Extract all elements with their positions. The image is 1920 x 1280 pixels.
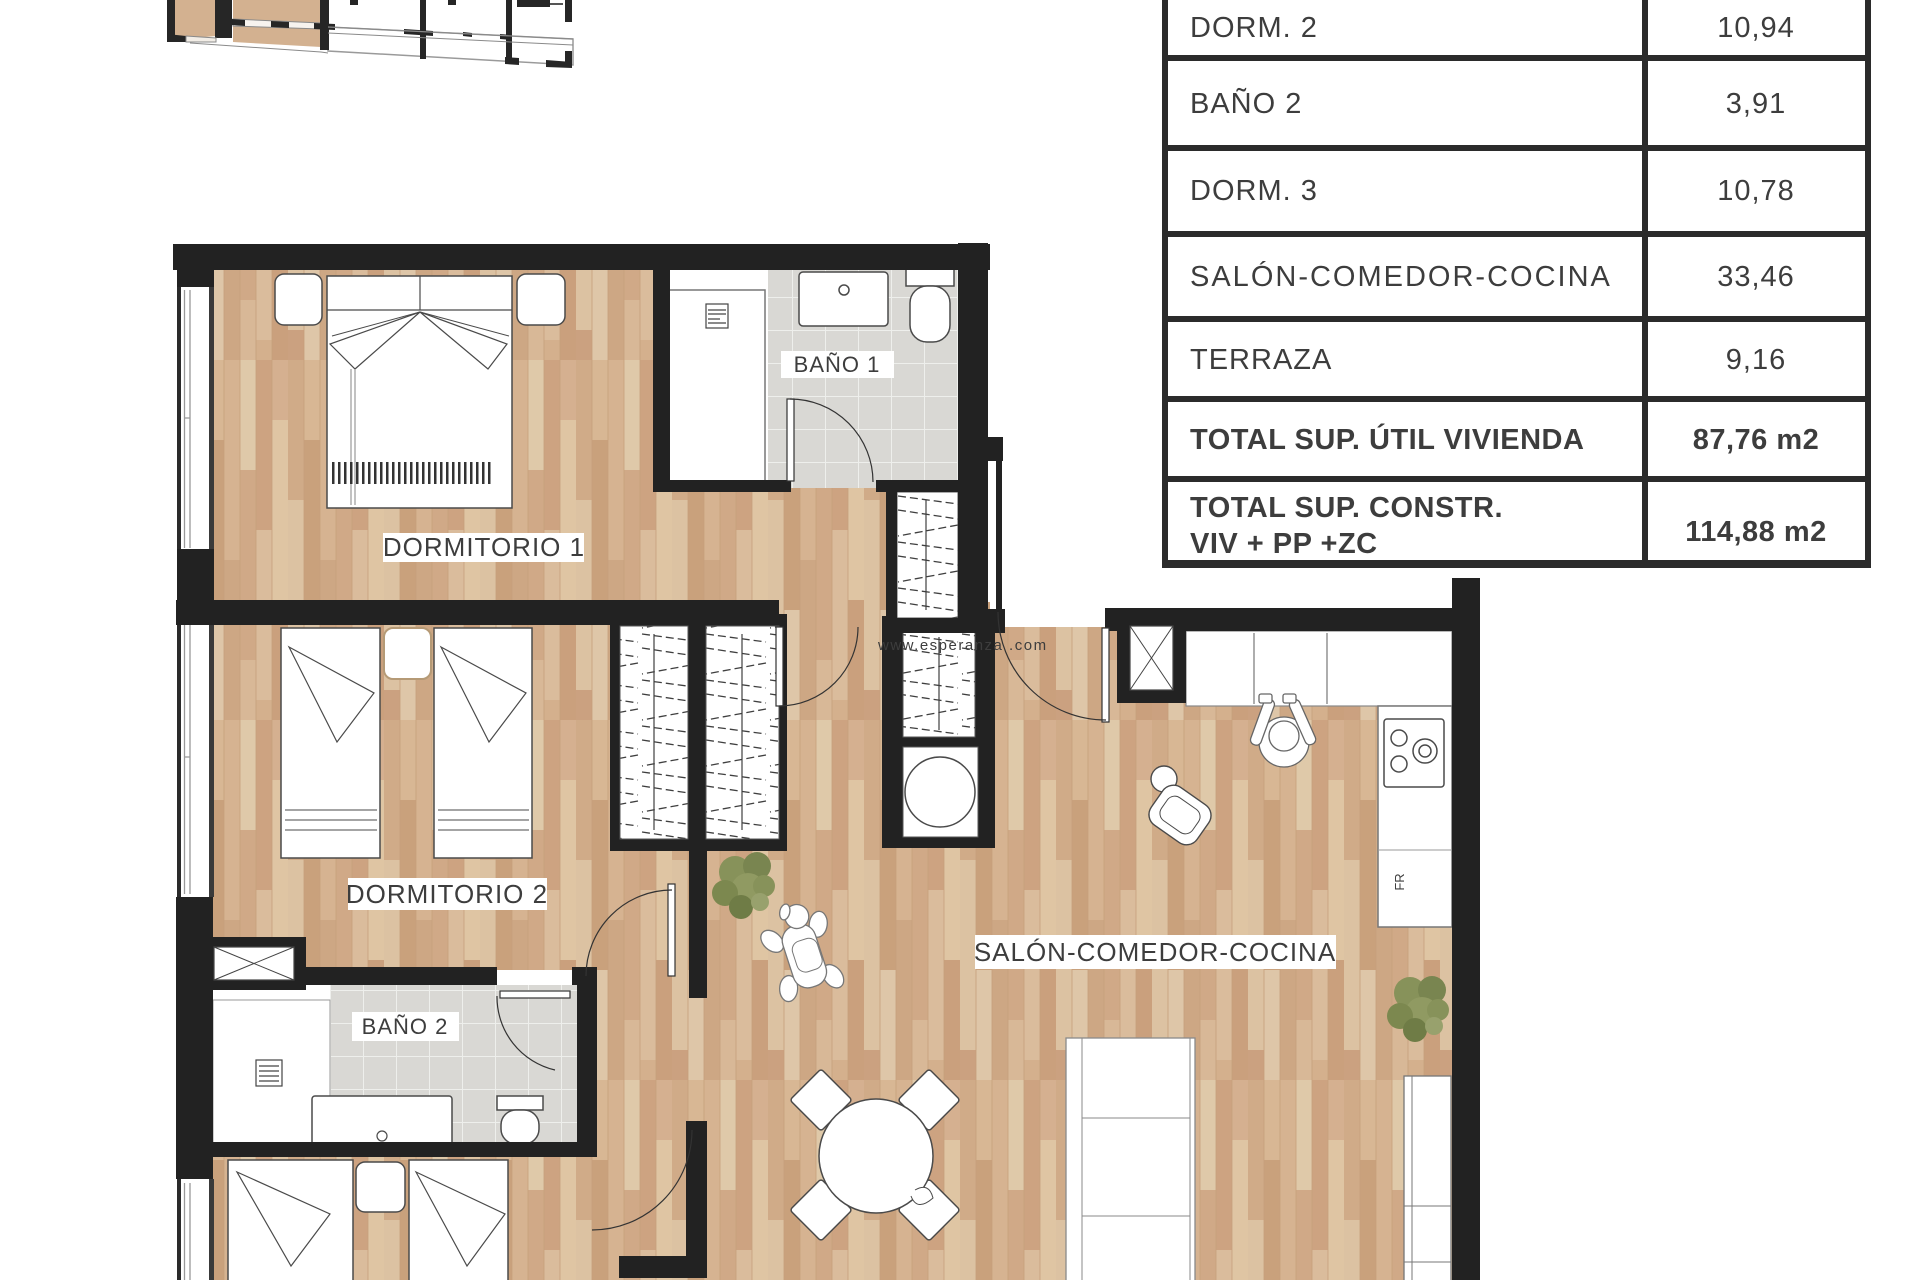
svg-text:3,91: 3,91	[1726, 88, 1786, 120]
svg-text:SALÓN-COMEDOR-COCINA: SALÓN-COMEDOR-COCINA	[1190, 260, 1612, 293]
svg-text:DORM. 3: DORM. 3	[1190, 175, 1318, 207]
svg-text:www.esperanza .com: www.esperanza .com	[877, 637, 1048, 654]
svg-text:TOTAL SUP. ÚTIL VIVIENDA: TOTAL SUP. ÚTIL VIVIENDA	[1190, 422, 1584, 456]
svg-text:BAÑO 2: BAÑO 2	[362, 1014, 449, 1039]
svg-text:DORMITORIO 2: DORMITORIO 2	[346, 879, 548, 909]
svg-text:DORMITORIO 1: DORMITORIO 1	[383, 532, 585, 562]
svg-text:BAÑO 2: BAÑO 2	[1190, 86, 1302, 120]
svg-text:SALÓN-COMEDOR-COCINA: SALÓN-COMEDOR-COCINA	[974, 937, 1336, 967]
svg-text:114,88 m2: 114,88 m2	[1685, 516, 1827, 548]
svg-text:BAÑO 1: BAÑO 1	[794, 352, 881, 377]
svg-text:TERRAZA: TERRAZA	[1190, 344, 1332, 376]
svg-text:10,78: 10,78	[1717, 175, 1795, 207]
svg-text:9,16: 9,16	[1726, 344, 1786, 376]
svg-text:87,76 m2: 87,76 m2	[1693, 424, 1820, 456]
svg-text:DORM. 2: DORM. 2	[1190, 12, 1318, 44]
svg-text:VIV + PP +ZC: VIV + PP +ZC	[1190, 528, 1378, 560]
svg-text:FR: FR	[1392, 873, 1407, 890]
svg-text:33,46: 33,46	[1717, 261, 1795, 293]
svg-text:10,94: 10,94	[1717, 12, 1795, 44]
svg-text:TOTAL SUP. CONSTR.: TOTAL SUP. CONSTR.	[1190, 492, 1503, 524]
